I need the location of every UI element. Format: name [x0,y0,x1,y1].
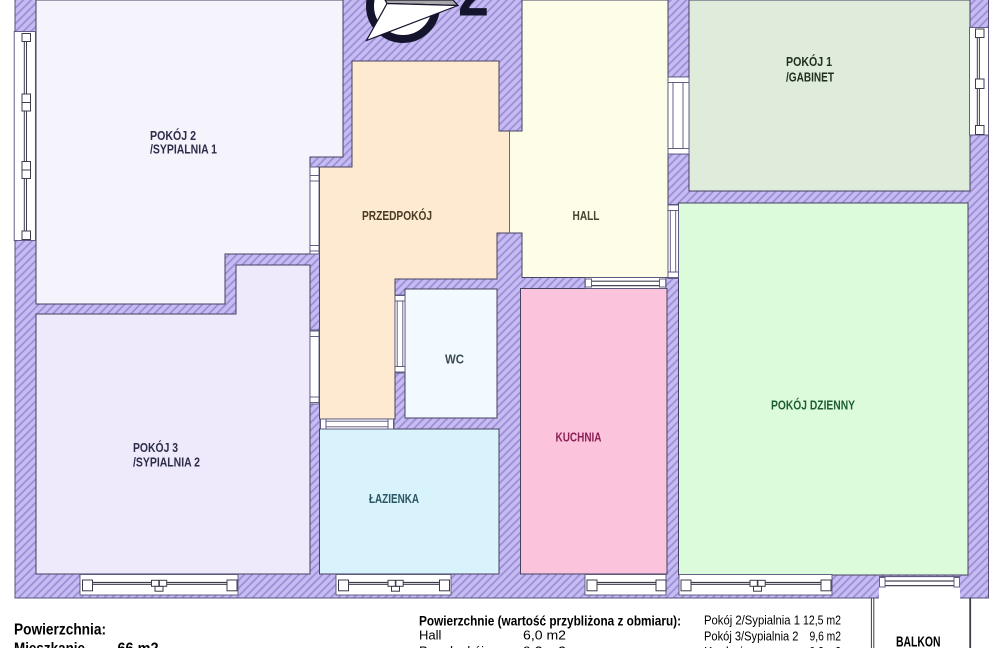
svg-text:9,6 m2: 9,6 m2 [810,630,842,644]
svg-text:9,3 m2: 9,3 m2 [523,644,566,648]
svg-text:6,0 m2: 6,0 m2 [523,628,566,643]
svg-text:Powierzchnie (wartość przybliż: Powierzchnie (wartość przybliżona z obmi… [419,614,681,629]
svg-text:Powierzchnia:: Powierzchnia: [14,622,106,639]
svg-text:66 m2: 66 m2 [118,641,159,648]
svg-text:POKÓJ 2: POKÓJ 2 [150,128,196,143]
svg-text:POKÓJ 3: POKÓJ 3 [133,440,178,455]
svg-text:POKÓJ 1: POKÓJ 1 [786,54,832,69]
svg-text:WC: WC [445,352,464,366]
svg-text:Hall: Hall [419,628,442,643]
svg-text:/SYPIALNIA 2: /SYPIALNIA 2 [133,456,200,470]
svg-text:KUCHNIA: KUCHNIA [556,431,602,445]
svg-text:HALL: HALL [573,209,600,223]
svg-text:Przedpokój: Przedpokój [419,644,484,648]
svg-text:PRZEDPOKÓJ: PRZEDPOKÓJ [362,208,432,223]
svg-text:12,5 m2: 12,5 m2 [803,614,841,628]
svg-text:/GABINET: /GABINET [786,71,834,85]
svg-text:BALKON: BALKON [896,635,941,648]
svg-text:/SYPIALNIA 1: /SYPIALNIA 1 [150,143,217,157]
svg-text:POKÓJ DZIENNY: POKÓJ DZIENNY [771,398,856,413]
svg-text:Pokój 3/Sypialnia 2: Pokój 3/Sypialnia 2 [704,630,799,644]
svg-text:Pokój 2/Sypialnia 1: Pokój 2/Sypialnia 1 [704,614,800,628]
svg-text:ŁAZIENKA: ŁAZIENKA [369,492,419,506]
svg-text:Mieszkanie: Mieszkanie [14,641,85,648]
svg-text:2: 2 [458,0,489,30]
